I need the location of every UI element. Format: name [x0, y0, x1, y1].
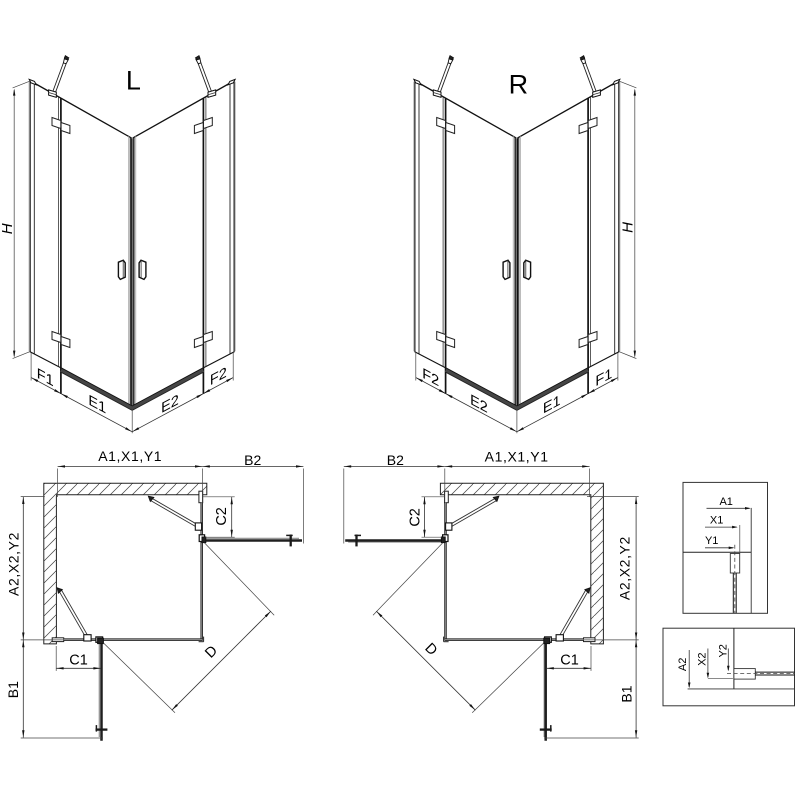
svg-text:B1: B1 — [619, 685, 635, 702]
svg-text:A1,X1,Y1: A1,X1,Y1 — [485, 449, 549, 465]
svg-text:H: H — [0, 223, 16, 234]
svg-text:A1,X1,Y1: A1,X1,Y1 — [98, 448, 162, 464]
svg-text:B2: B2 — [244, 452, 261, 468]
svg-text:C1: C1 — [560, 652, 579, 668]
svg-text:A2,X2,Y2: A2,X2,Y2 — [617, 536, 633, 600]
svg-text:Y2: Y2 — [717, 644, 729, 657]
svg-text:X1: X1 — [710, 514, 723, 526]
svg-text:B1: B1 — [5, 681, 21, 698]
svg-text:A2,X2,Y2: A2,X2,Y2 — [6, 532, 22, 596]
svg-text:B2: B2 — [387, 452, 404, 468]
svg-text:A1: A1 — [719, 496, 732, 508]
svg-text:C1: C1 — [69, 652, 88, 668]
svg-text:A2: A2 — [677, 658, 689, 671]
svg-text:Y1: Y1 — [705, 535, 718, 547]
svg-text:C2: C2 — [214, 507, 230, 526]
svg-text:X2: X2 — [696, 652, 708, 665]
svg-text:H: H — [619, 222, 636, 233]
svg-text:R: R — [509, 70, 529, 100]
svg-text:L: L — [126, 66, 141, 96]
svg-text:C2: C2 — [408, 508, 424, 527]
